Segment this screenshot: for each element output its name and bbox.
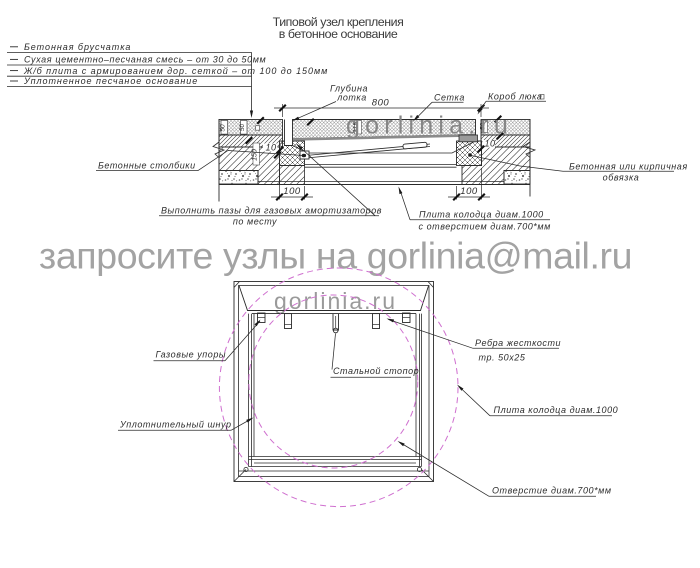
svg-text:100: 100: [283, 186, 301, 197]
svg-text:Короб люка: Короб люка: [488, 92, 542, 102]
svg-text:Плита колодца диам.1000: Плита колодца диам.1000: [419, 210, 544, 220]
svg-text:Бетонная или кирпичная: Бетонная или кирпичная: [569, 162, 688, 172]
svg-text:10: 10: [265, 143, 276, 153]
svg-text:Сухая цементно–песчаная смесь: Сухая цементно–песчаная смесь – от 30 до…: [24, 55, 266, 65]
svg-text:Отверстие диам.700*мм: Отверстие диам.700*мм: [492, 486, 612, 496]
svg-text:лотка: лотка: [336, 93, 367, 103]
svg-text:обвязка: обвязка: [603, 173, 640, 183]
svg-text:в бетонное основание: в бетонное основание: [279, 27, 398, 41]
svg-text:Плита колодца диам.1000: Плита колодца диам.1000: [494, 405, 619, 415]
svg-text:Сетка: Сетка: [434, 93, 465, 103]
svg-text:Стальной стопор: Стальной стопор: [333, 366, 419, 376]
svg-text:Бетонные столбики: Бетонные столбики: [98, 161, 196, 171]
svg-text:150: 150: [252, 149, 259, 161]
svg-text:Уплотненное песчаное основан: Уплотненное песчаное основание: [23, 76, 198, 86]
svg-text:по месту: по месту: [233, 217, 277, 227]
svg-text:50: 50: [220, 124, 227, 132]
svg-text:100: 100: [460, 186, 478, 197]
svg-text:Газовые упоры: Газовые упоры: [156, 350, 227, 360]
svg-text:Выполнить пазы для газовых: Выполнить пазы для газовых амортизаторов: [161, 206, 382, 216]
svg-text:Ребра жесткости: Ребра жесткости: [475, 338, 561, 348]
svg-text:50: 50: [239, 124, 246, 132]
svg-text:с отверстием диам.700*мм: с отверстием диам.700*мм: [419, 222, 551, 232]
svg-text:gorlinia.ru: gorlinia.ru: [346, 112, 513, 140]
svg-text:10: 10: [484, 139, 495, 149]
svg-text:800: 800: [372, 98, 390, 109]
svg-text:запросите узлы на gorlinia@mai: запросите узлы на gorlinia@mail.ru: [39, 234, 632, 276]
svg-text:Уплотнительный шнур: Уплотнительный шнур: [119, 420, 232, 430]
svg-text:Ж/б плита с армированием д: Ж/б плита с армированием дор. сеткой – о…: [23, 66, 328, 76]
svg-text:тр. 50х25: тр. 50х25: [479, 353, 526, 363]
svg-text:Бетонная брусчатка: Бетонная брусчатка: [24, 42, 131, 52]
